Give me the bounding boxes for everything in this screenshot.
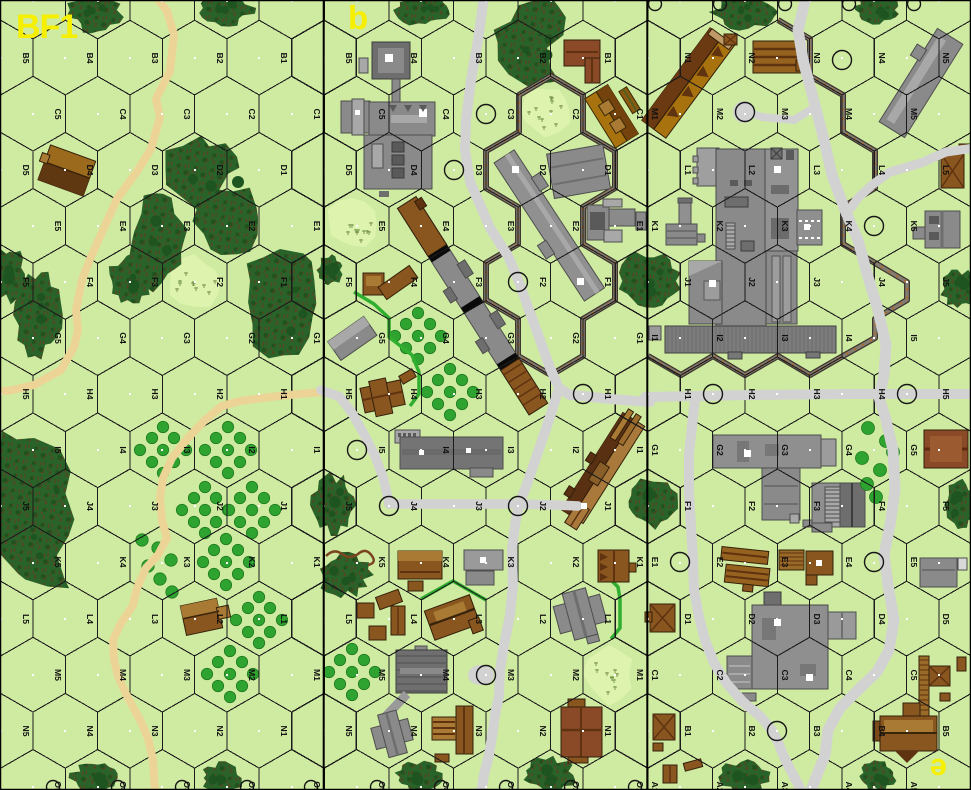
svg-text:N1: N1	[603, 726, 613, 737]
svg-text:L3: L3	[474, 614, 484, 624]
svg-text:E5: E5	[909, 557, 919, 568]
svg-text:M1: M1	[635, 669, 645, 681]
svg-text:G3: G3	[182, 332, 192, 344]
svg-text:D2: D2	[538, 165, 548, 176]
svg-text:B3: B3	[474, 53, 484, 64]
svg-text:I1: I1	[635, 446, 645, 453]
svg-text:F5: F5	[344, 277, 354, 287]
svg-text:J1: J1	[603, 501, 613, 511]
svg-text:F1: F1	[603, 277, 613, 287]
svg-text:D3: D3	[474, 165, 484, 176]
svg-text:I4: I4	[844, 334, 854, 341]
svg-text:K1: K1	[312, 557, 322, 568]
svg-text:L3: L3	[150, 614, 160, 624]
svg-text:L5: L5	[21, 614, 31, 624]
svg-text:G3: G3	[506, 332, 516, 344]
svg-text:H5: H5	[344, 389, 354, 400]
svg-text:N2: N2	[215, 726, 225, 737]
svg-text:F2: F2	[215, 277, 225, 287]
svg-text:F3: F3	[150, 277, 160, 287]
svg-text:H2: H2	[538, 389, 548, 400]
svg-text:I3: I3	[182, 446, 192, 453]
svg-text:L5: L5	[941, 165, 951, 175]
svg-text:B2: B2	[747, 726, 757, 737]
svg-text:L4: L4	[409, 614, 419, 624]
svg-text:N3: N3	[812, 53, 822, 64]
svg-text:C5: C5	[53, 109, 63, 120]
svg-text:K3: K3	[182, 557, 192, 568]
svg-text:B1: B1	[279, 53, 289, 64]
svg-text:G2: G2	[571, 332, 581, 344]
svg-text:C1: C1	[312, 109, 322, 120]
svg-text:B5: B5	[21, 53, 31, 64]
svg-text:L2: L2	[538, 614, 548, 624]
svg-text:A1: A1	[650, 782, 660, 790]
svg-text:K5: K5	[909, 221, 919, 232]
svg-text:I1: I1	[650, 334, 660, 341]
svg-text:J4: J4	[85, 501, 95, 511]
svg-text:E3: E3	[506, 221, 516, 232]
svg-text:C3: C3	[780, 670, 790, 681]
svg-text:E2: E2	[715, 557, 725, 568]
svg-text:C1: C1	[635, 109, 645, 120]
svg-text:e: e	[930, 752, 947, 787]
svg-text:B3: B3	[812, 726, 822, 737]
svg-text:F5: F5	[941, 501, 951, 511]
svg-text:H1: H1	[603, 389, 613, 400]
svg-text:B5: B5	[941, 726, 951, 737]
svg-text:K3: K3	[506, 557, 516, 568]
svg-text:E2: E2	[247, 221, 257, 232]
svg-text:M5: M5	[53, 669, 63, 681]
svg-text:B4: B4	[877, 726, 887, 737]
svg-text:I5: I5	[909, 334, 919, 341]
svg-text:K5: K5	[377, 557, 387, 568]
svg-text:D5: D5	[21, 165, 31, 176]
svg-text:M2: M2	[715, 108, 725, 120]
svg-text:I3: I3	[780, 334, 790, 341]
svg-text:G4: G4	[844, 444, 854, 456]
svg-text:E1: E1	[635, 221, 645, 232]
svg-text:C5: C5	[909, 670, 919, 681]
svg-text:L4: L4	[877, 165, 887, 175]
svg-text:F1: F1	[279, 277, 289, 287]
svg-text:B2: B2	[538, 53, 548, 64]
svg-text:N2: N2	[538, 726, 548, 737]
svg-text:N3: N3	[474, 726, 484, 737]
svg-text:H1: H1	[279, 389, 289, 400]
svg-text:I2: I2	[247, 446, 257, 453]
svg-text:K5: K5	[53, 557, 63, 568]
svg-text:E2: E2	[571, 221, 581, 232]
svg-text:D5: D5	[344, 165, 354, 176]
svg-text:D4: D4	[85, 165, 95, 176]
svg-text:G5: G5	[909, 444, 919, 456]
svg-text:B2: B2	[215, 53, 225, 64]
svg-text:H2: H2	[215, 389, 225, 400]
svg-text:E1: E1	[312, 221, 322, 232]
svg-text:L4: L4	[85, 614, 95, 624]
svg-text:I1: I1	[312, 446, 322, 453]
svg-text:J1: J1	[683, 277, 693, 287]
svg-text:H3: H3	[474, 389, 484, 400]
svg-text:N1: N1	[279, 726, 289, 737]
svg-text:J3: J3	[150, 501, 160, 511]
svg-text:G2: G2	[715, 444, 725, 456]
svg-text:C2: C2	[571, 109, 581, 120]
svg-text:F2: F2	[538, 277, 548, 287]
svg-text:C3: C3	[506, 109, 516, 120]
svg-text:D1: D1	[279, 165, 289, 176]
svg-text:C4: C4	[844, 670, 854, 681]
svg-text:F4: F4	[877, 501, 887, 511]
svg-text:K3: K3	[780, 221, 790, 232]
svg-text:E4: E4	[844, 557, 854, 568]
svg-text:E3: E3	[182, 221, 192, 232]
svg-text:E1: E1	[650, 557, 660, 568]
svg-text:M1: M1	[650, 108, 660, 120]
svg-text:H5: H5	[21, 389, 31, 400]
svg-text:E3: E3	[780, 557, 790, 568]
svg-text:N5: N5	[344, 726, 354, 737]
svg-text:B1: B1	[603, 53, 613, 64]
svg-text:K2: K2	[247, 557, 257, 568]
svg-text:BF1: BF1	[16, 8, 77, 46]
svg-text:I2: I2	[715, 334, 725, 341]
svg-text:D3: D3	[150, 165, 160, 176]
svg-text:K4: K4	[441, 557, 451, 568]
svg-text:G1: G1	[312, 332, 322, 344]
svg-text:A3: A3	[780, 782, 790, 790]
svg-text:D1: D1	[683, 614, 693, 625]
svg-text:G1: G1	[650, 444, 660, 456]
svg-text:J5: J5	[344, 501, 354, 511]
svg-text:G4: G4	[118, 332, 128, 344]
svg-text:G1: G1	[635, 332, 645, 344]
svg-text:J2: J2	[538, 501, 548, 511]
svg-text:H1: H1	[683, 389, 693, 400]
svg-text:B3: B3	[150, 53, 160, 64]
svg-text:N4: N4	[85, 726, 95, 737]
svg-text:F4: F4	[85, 277, 95, 287]
svg-text:K2: K2	[571, 557, 581, 568]
svg-text:L2: L2	[747, 165, 757, 175]
svg-text:J4: J4	[877, 277, 887, 287]
svg-text:J3: J3	[474, 501, 484, 511]
svg-text:J2: J2	[747, 277, 757, 287]
svg-text:K1: K1	[650, 221, 660, 232]
svg-text:H3: H3	[150, 389, 160, 400]
svg-text:M1: M1	[312, 669, 322, 681]
svg-text:F1: F1	[683, 501, 693, 511]
svg-text:L1: L1	[603, 614, 613, 624]
svg-text:M3: M3	[506, 669, 516, 681]
svg-text:G4: G4	[441, 332, 451, 344]
svg-text:D4: D4	[409, 165, 419, 176]
svg-text:L3: L3	[812, 165, 822, 175]
svg-text:J5: J5	[941, 277, 951, 287]
svg-text:D4: D4	[877, 614, 887, 625]
svg-text:L1: L1	[683, 165, 693, 175]
svg-text:B4: B4	[409, 53, 419, 64]
svg-text:M2: M2	[247, 669, 257, 681]
svg-text:C2: C2	[715, 670, 725, 681]
svg-text:D5: D5	[941, 614, 951, 625]
svg-text:L1: L1	[279, 614, 289, 624]
svg-text:E5: E5	[53, 221, 63, 232]
svg-text:D2: D2	[215, 165, 225, 176]
svg-text:I5: I5	[377, 446, 387, 453]
svg-text:E4: E4	[441, 221, 451, 232]
svg-text:D2: D2	[747, 614, 757, 625]
svg-text:C5: C5	[377, 109, 387, 120]
svg-text:G5: G5	[53, 332, 63, 344]
svg-text:J3: J3	[812, 277, 822, 287]
svg-text:J5: J5	[21, 501, 31, 511]
svg-text:H4: H4	[409, 389, 419, 400]
svg-text:C2: C2	[247, 109, 257, 120]
svg-text:F5: F5	[21, 277, 31, 287]
svg-text:M2: M2	[571, 669, 581, 681]
svg-text:J1: J1	[279, 501, 289, 511]
svg-text:L5: L5	[344, 614, 354, 624]
svg-text:M5: M5	[909, 108, 919, 120]
svg-text:M3: M3	[780, 108, 790, 120]
svg-text:F2: F2	[747, 501, 757, 511]
svg-text:A2: A2	[715, 782, 725, 790]
svg-text:B1: B1	[683, 726, 693, 737]
svg-text:H2: H2	[747, 389, 757, 400]
svg-text:K2: K2	[715, 221, 725, 232]
svg-text:C4: C4	[441, 109, 451, 120]
svg-text:H3: H3	[812, 389, 822, 400]
svg-text:I5: I5	[53, 446, 63, 453]
svg-text:K4: K4	[844, 221, 854, 232]
svg-text:N3: N3	[150, 726, 160, 737]
svg-text:G3: G3	[780, 444, 790, 456]
svg-text:H4: H4	[877, 389, 887, 400]
svg-text:J2: J2	[215, 501, 225, 511]
svg-text:A4: A4	[844, 782, 854, 790]
svg-text:M5: M5	[377, 669, 387, 681]
svg-text:I3: I3	[506, 446, 516, 453]
svg-text:J4: J4	[409, 501, 419, 511]
svg-text:K4: K4	[118, 557, 128, 568]
svg-text:N5: N5	[941, 53, 951, 64]
svg-text:F3: F3	[474, 277, 484, 287]
svg-text:N2: N2	[747, 53, 757, 64]
svg-text:N1: N1	[683, 53, 693, 64]
svg-text:C3: C3	[182, 109, 192, 120]
svg-text:F3: F3	[812, 501, 822, 511]
svg-text:D3: D3	[812, 614, 822, 625]
svg-text:N4: N4	[877, 53, 887, 64]
svg-text:B5: B5	[344, 53, 354, 64]
svg-text:A5: A5	[909, 782, 919, 790]
svg-text:K1: K1	[635, 557, 645, 568]
svg-text:N5: N5	[21, 726, 31, 737]
svg-text:N4: N4	[409, 726, 419, 737]
svg-text:I4: I4	[441, 446, 451, 453]
svg-text:M4: M4	[441, 669, 451, 681]
svg-text:b: b	[348, 0, 368, 36]
svg-text:H4: H4	[85, 389, 95, 400]
svg-text:I2: I2	[571, 446, 581, 453]
svg-text:F4: F4	[409, 277, 419, 287]
svg-text:G2: G2	[247, 332, 257, 344]
svg-text:G5: G5	[377, 332, 387, 344]
svg-text:C4: C4	[118, 109, 128, 120]
svg-text:M4: M4	[118, 669, 128, 681]
svg-text:M4: M4	[844, 108, 854, 120]
svg-text:C1: C1	[650, 670, 660, 681]
svg-text:B4: B4	[85, 53, 95, 64]
svg-text:D1: D1	[603, 165, 613, 176]
svg-text:E4: E4	[118, 221, 128, 232]
svg-text:L2: L2	[215, 614, 225, 624]
svg-text:M3: M3	[182, 669, 192, 681]
svg-text:I4: I4	[118, 446, 128, 453]
svg-text:H5: H5	[941, 389, 951, 400]
svg-text:E5: E5	[377, 221, 387, 232]
